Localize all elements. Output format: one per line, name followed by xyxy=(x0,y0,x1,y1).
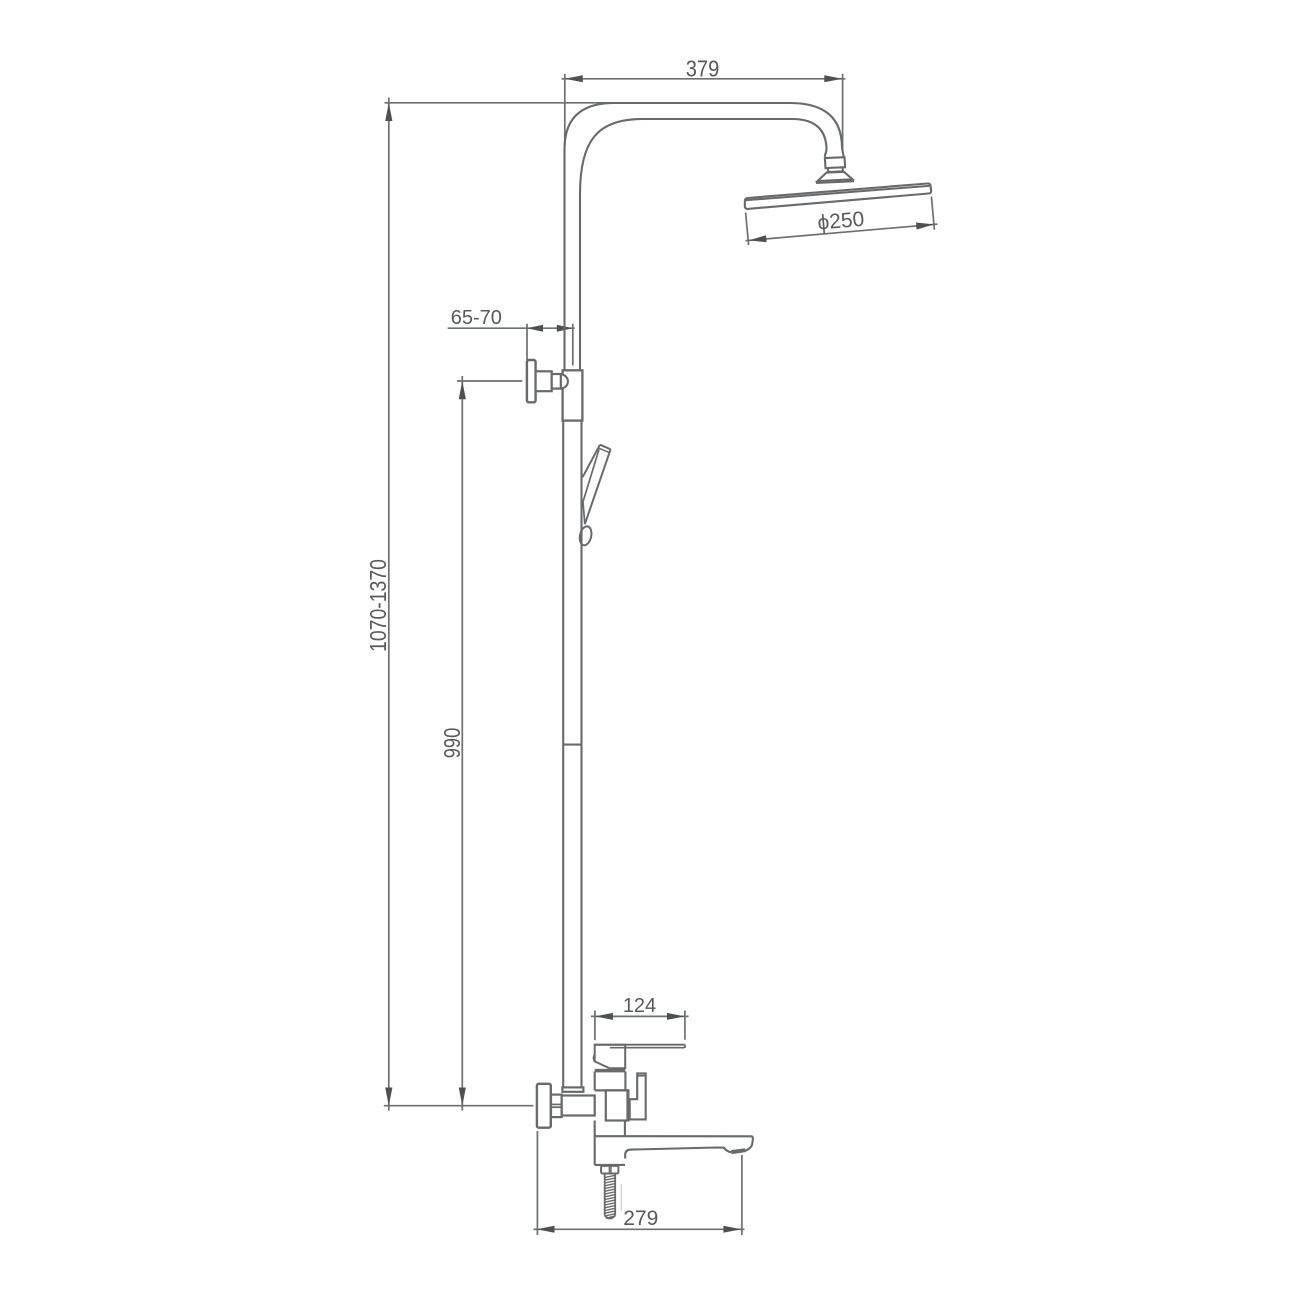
svg-text:1070-1370: 1070-1370 xyxy=(365,559,391,652)
svg-text:124: 124 xyxy=(623,995,656,1017)
svg-text:990: 990 xyxy=(439,728,465,759)
svg-text:279: 279 xyxy=(623,1207,658,1230)
svg-text:ϕ250: ϕ250 xyxy=(817,208,866,235)
svg-text:65-70: 65-70 xyxy=(451,307,502,329)
svg-text:379: 379 xyxy=(686,55,720,81)
